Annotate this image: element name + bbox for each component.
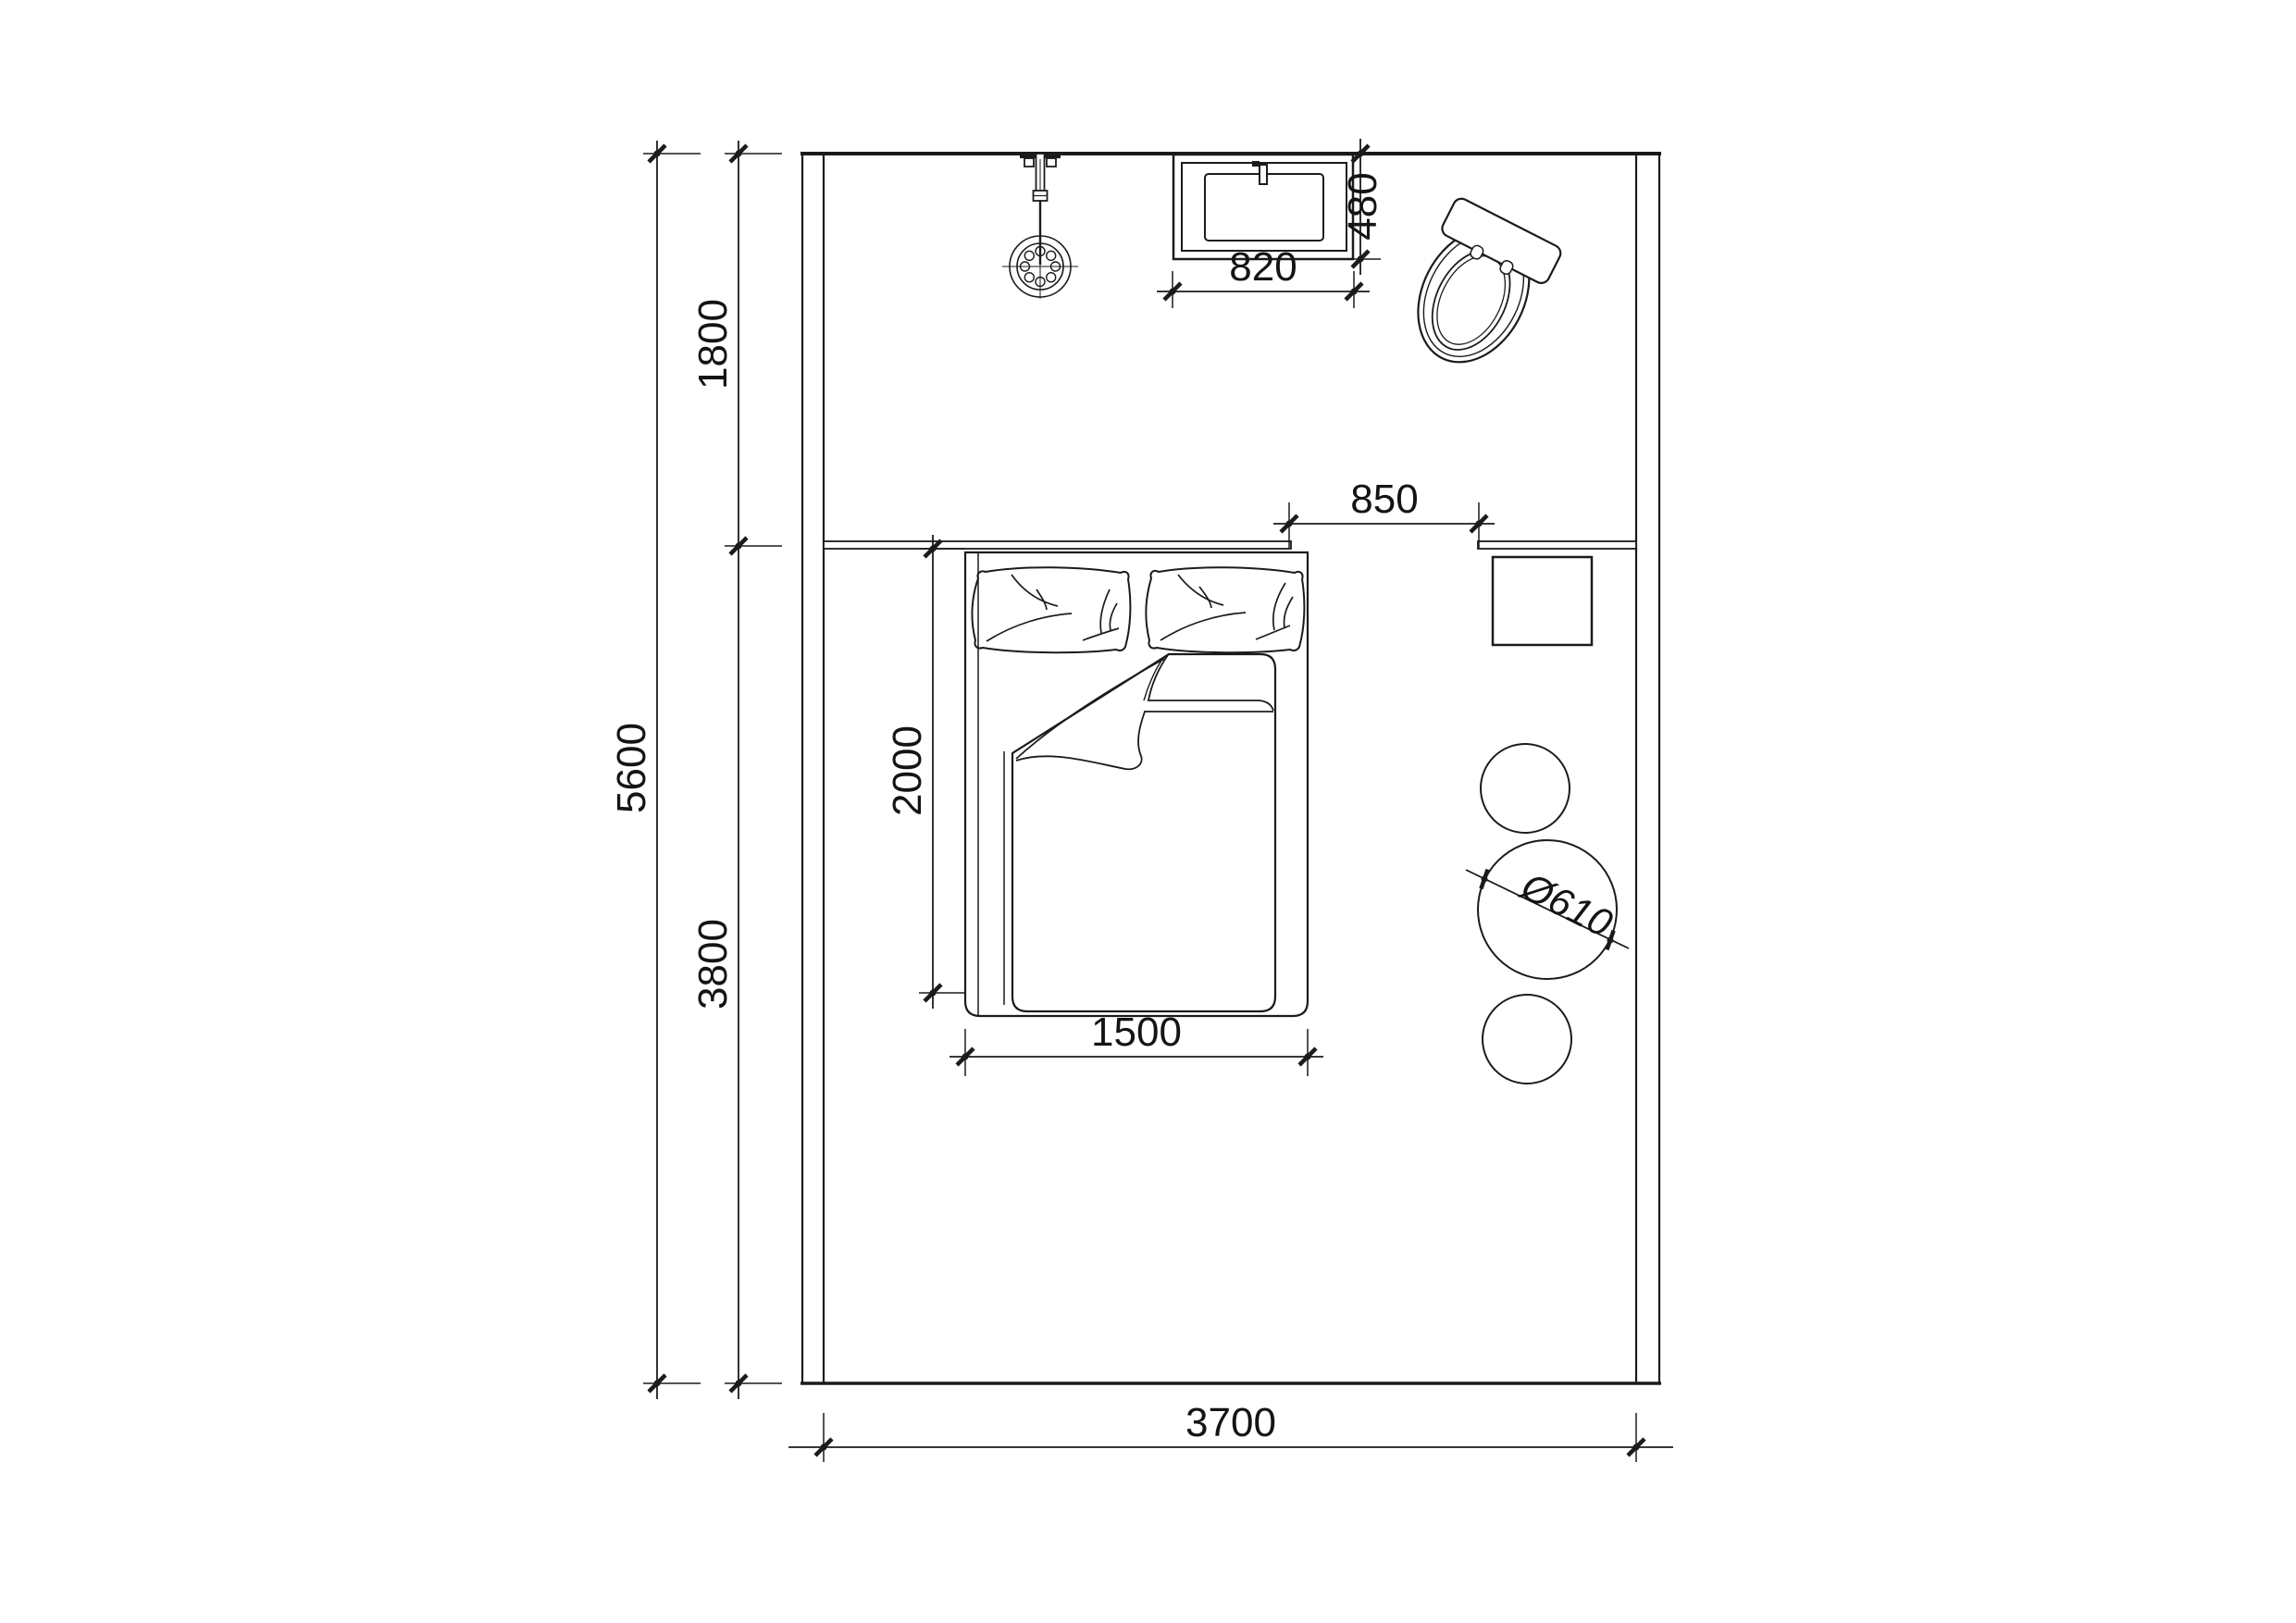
label-shower-zone: 1800 bbox=[690, 299, 736, 390]
washbasin-faucet bbox=[1260, 165, 1267, 184]
floor-plan-sheet: 5600 1800 3800 3700 820 480 850 2000 150… bbox=[0, 0, 2296, 1623]
label-room-length: 5600 bbox=[609, 723, 654, 813]
right-furniture bbox=[1478, 557, 1617, 1084]
label-round-table-diameter: Ø610 bbox=[1513, 863, 1620, 946]
round-stool-top bbox=[1481, 744, 1570, 833]
wall-shelf bbox=[1478, 541, 1636, 549]
label-washbasin-depth: 480 bbox=[1340, 172, 1385, 240]
label-bed-length: 2000 bbox=[885, 725, 930, 816]
label-bedroom-zone: 3800 bbox=[690, 919, 736, 1010]
shower-hook-right bbox=[1047, 158, 1056, 167]
label-bed-to-shelf: 850 bbox=[1350, 477, 1418, 522]
toilet bbox=[1389, 196, 1564, 385]
label-room-width: 3700 bbox=[1185, 1400, 1276, 1445]
ledges bbox=[824, 541, 1636, 549]
headboard-ledge bbox=[824, 541, 1291, 549]
label-bed-width: 1500 bbox=[1091, 1010, 1182, 1055]
bed bbox=[965, 552, 1308, 1016]
round-stool-bottom bbox=[1483, 995, 1571, 1084]
square-stool bbox=[1493, 557, 1592, 645]
washbasin-faucet-base bbox=[1252, 161, 1260, 167]
shower-fixture bbox=[1002, 154, 1078, 299]
floor-plan-canvas: 5600 1800 3800 3700 820 480 850 2000 150… bbox=[0, 0, 2296, 1623]
label-washbasin-width: 820 bbox=[1229, 244, 1297, 290]
shower-hook-left bbox=[1024, 158, 1034, 167]
